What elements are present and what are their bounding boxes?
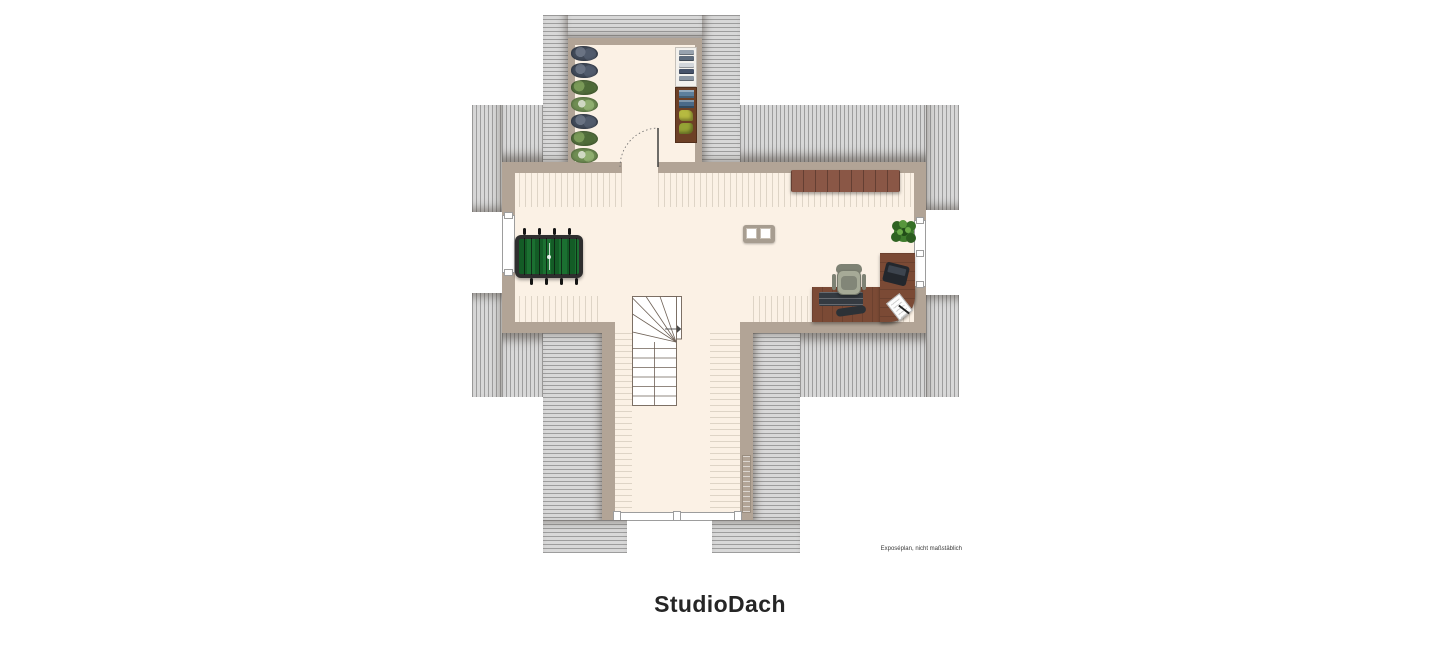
foosball-rod bbox=[546, 238, 547, 275]
potted-plant-icon bbox=[571, 131, 598, 146]
foosball-handle bbox=[568, 228, 571, 235]
roof-hatch-bottom-left bbox=[502, 333, 543, 397]
office-chair bbox=[832, 264, 866, 298]
low-ceiling-hatch bbox=[615, 333, 632, 512]
right-window-handle bbox=[916, 250, 924, 257]
folded-clothes bbox=[679, 69, 694, 74]
chair-armrest bbox=[832, 274, 836, 290]
floorplan-page: Exposéplan, nicht maßstäblich StudioDach bbox=[0, 0, 1440, 664]
foosball-rod bbox=[569, 238, 570, 275]
right-window-handle bbox=[916, 281, 924, 288]
plants-row bbox=[571, 46, 598, 166]
bottom-window-post bbox=[673, 511, 681, 521]
roof-hatch-dormer-left bbox=[543, 15, 568, 162]
roof-hatch-top-right-overhang bbox=[926, 105, 959, 210]
side-table bbox=[743, 225, 775, 243]
low-ceiling-hatch bbox=[513, 173, 622, 207]
chair-armrest bbox=[862, 274, 866, 290]
potted-plant-icon bbox=[571, 80, 598, 95]
wall-dormer-top bbox=[568, 38, 702, 45]
roof-hatch-wing-right bbox=[753, 333, 800, 520]
storage-bag bbox=[679, 123, 693, 134]
foosball-rod bbox=[576, 238, 577, 275]
wall-bottom-right bbox=[753, 322, 926, 333]
folded-clothes bbox=[679, 76, 694, 81]
wall-bottom-left bbox=[502, 322, 602, 333]
wall-wing-left bbox=[602, 322, 615, 520]
foosball-handle bbox=[538, 228, 541, 235]
foosball-field bbox=[519, 239, 579, 274]
folded-clothes bbox=[679, 100, 694, 108]
potted-plant-icon bbox=[571, 63, 598, 78]
wall-top-left bbox=[502, 162, 622, 173]
winder-stairs bbox=[632, 296, 682, 406]
roof-hatch-bottom-left-overhang bbox=[472, 293, 502, 397]
roof-hatch-bottom-right bbox=[800, 333, 926, 397]
page-title: StudioDach bbox=[0, 591, 1440, 618]
foosball-rod bbox=[524, 238, 525, 275]
sideboard bbox=[791, 170, 900, 192]
potted-plant-icon bbox=[571, 97, 598, 112]
foosball-rod bbox=[539, 238, 540, 275]
interior-door bbox=[616, 123, 662, 171]
open-shelf bbox=[675, 47, 697, 87]
roof-hatch-bottom-right-overhang bbox=[926, 295, 959, 397]
tray bbox=[760, 228, 771, 239]
radiator bbox=[742, 455, 751, 513]
tray bbox=[746, 228, 757, 239]
folded-clothes bbox=[679, 50, 694, 55]
potted-plant-icon bbox=[571, 46, 598, 61]
roof-hatch-dormer-top bbox=[568, 15, 702, 38]
foosball-handle bbox=[575, 278, 578, 285]
foosball-rod bbox=[531, 238, 532, 275]
left-window-handle bbox=[504, 269, 513, 276]
roof-hatch-top-left bbox=[502, 105, 543, 162]
folded-clothes bbox=[679, 90, 694, 98]
foosball-rod bbox=[554, 238, 555, 275]
foosball-centerdot bbox=[547, 255, 551, 259]
folded-clothes bbox=[679, 56, 694, 61]
roof-hatch-top-right bbox=[740, 105, 926, 162]
left-window-handle bbox=[504, 212, 513, 219]
low-ceiling-hatch bbox=[513, 296, 602, 322]
wardrobe bbox=[675, 87, 697, 143]
foosball-handle bbox=[545, 278, 548, 285]
potted-plant-icon bbox=[571, 114, 598, 129]
foosball-handle bbox=[553, 228, 556, 235]
low-ceiling-hatch bbox=[710, 333, 740, 512]
roof-hatch-dormer-right bbox=[702, 15, 740, 162]
left-window bbox=[502, 215, 515, 273]
floorplan bbox=[470, 15, 962, 553]
foosball-table bbox=[515, 235, 583, 278]
roof-hatch-top-left-overhang bbox=[472, 105, 502, 212]
potted-plant-icon bbox=[571, 148, 598, 163]
disclaimer-note: Exposéplan, nicht maßstäblich bbox=[470, 546, 962, 552]
roof-hatch-wing-left bbox=[543, 333, 602, 520]
chair-cushion bbox=[841, 276, 857, 290]
foosball-handle bbox=[530, 278, 533, 285]
folded-clothes bbox=[679, 63, 694, 68]
foosball-handle bbox=[523, 228, 526, 235]
potted-plant bbox=[890, 217, 918, 247]
foosball-handle bbox=[560, 278, 563, 285]
storage-bag bbox=[679, 110, 693, 121]
foosball-rod bbox=[561, 238, 562, 275]
